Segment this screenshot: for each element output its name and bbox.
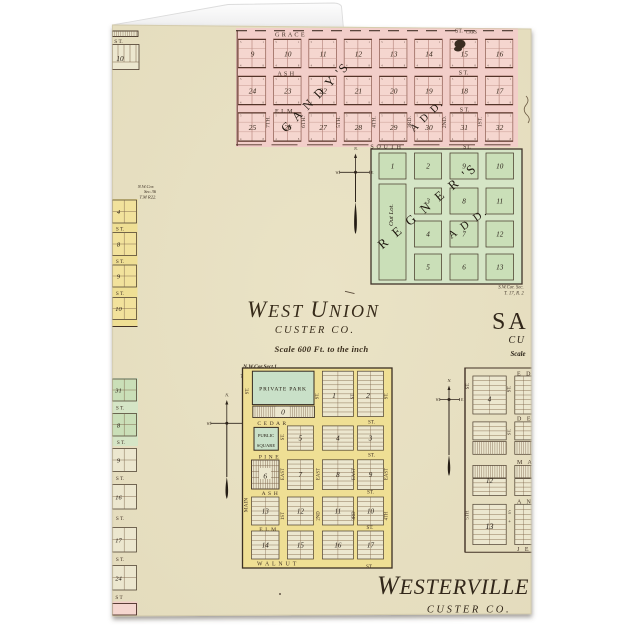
svg-text:16: 16 <box>496 49 504 58</box>
svg-text:3RD: 3RD <box>352 511 357 521</box>
svg-text:5TH: 5TH <box>466 510 471 520</box>
svg-text:N.: N. <box>353 146 358 151</box>
svg-text:24: 24 <box>249 86 257 95</box>
svg-text:5: 5 <box>426 264 430 272</box>
svg-text:ST.: ST. <box>367 490 374 496</box>
svg-text:17: 17 <box>115 537 122 544</box>
svg-text:2: 2 <box>366 391 370 400</box>
svg-text:1: 1 <box>391 163 395 171</box>
svg-text:10: 10 <box>116 55 124 63</box>
svg-text:PRIVATE PARK: PRIVATE PARK <box>259 387 307 393</box>
svg-text:Scale: Scale <box>510 351 525 358</box>
svg-text:10: 10 <box>115 306 122 313</box>
svg-text:S T.: S T. <box>460 108 470 114</box>
svg-text:3: 3 <box>368 435 373 443</box>
svg-text:16: 16 <box>115 494 122 501</box>
svg-text:17: 17 <box>496 86 504 95</box>
svg-text:13: 13 <box>496 264 504 272</box>
svg-text:SA: SA <box>492 309 529 335</box>
svg-text:14: 14 <box>262 542 270 550</box>
svg-text:A S H: A S H <box>262 491 279 497</box>
svg-text:WEST UNION: WEST UNION <box>247 297 380 322</box>
svg-text:20: 20 <box>390 86 398 95</box>
svg-text:24: 24 <box>115 575 122 582</box>
svg-text:ST.: ST. <box>367 525 374 531</box>
svg-text:4: 4 <box>488 396 492 404</box>
svg-text:W.: W. <box>335 171 339 175</box>
svg-text:4TH.: 4TH. <box>372 116 378 128</box>
svg-text:13: 13 <box>390 49 398 58</box>
svg-text:12: 12 <box>496 231 504 239</box>
svg-text:1ST: 1ST <box>281 512 286 520</box>
svg-text:18: 18 <box>461 86 469 95</box>
svg-text:17: 17 <box>367 542 375 550</box>
svg-text:ST.: ST. <box>455 29 463 35</box>
svg-text:11: 11 <box>320 49 327 58</box>
svg-text:S T.: S T. <box>116 227 124 233</box>
svg-text:S T.: S T. <box>116 557 124 563</box>
svg-text:ST.: ST. <box>351 393 356 400</box>
svg-text:6: 6 <box>263 472 267 481</box>
svg-text:EAST: EAST <box>281 468 286 480</box>
svg-text:ST: ST <box>366 564 373 570</box>
svg-text:C E D A R: C E D A R <box>257 421 286 427</box>
svg-text:4: 4 <box>426 231 430 239</box>
svg-text:S T.: S T. <box>114 39 123 45</box>
svg-text:6: 6 <box>462 264 466 272</box>
svg-text:ST.: ST. <box>466 383 471 390</box>
svg-text:8: 8 <box>462 198 466 206</box>
svg-text:T.M R22.: T.M R22. <box>140 194 157 199</box>
svg-text:N.: N. <box>224 393 229 398</box>
svg-text:7TH.: 7TH. <box>266 116 272 128</box>
svg-text:2: 2 <box>426 163 430 171</box>
svg-text:12: 12 <box>486 477 494 485</box>
svg-text:16: 16 <box>334 542 342 550</box>
svg-text:25: 25 <box>249 123 257 132</box>
svg-text:8: 8 <box>336 471 340 479</box>
svg-text:27: 27 <box>319 123 327 132</box>
svg-text:12: 12 <box>355 49 363 58</box>
svg-text:S.W.Cor. Sec.: S.W.Cor. Sec. <box>498 286 524 291</box>
svg-text:11: 11 <box>496 198 503 206</box>
svg-text:ST.: ST. <box>508 386 513 393</box>
svg-text:G R A C E: G R A C E <box>275 32 305 39</box>
svg-text:2ND: 2ND <box>317 511 322 521</box>
svg-text:15: 15 <box>297 542 305 550</box>
svg-text:10: 10 <box>284 49 292 58</box>
svg-text:21: 21 <box>355 86 362 95</box>
svg-text:WESTERVILLE: WESTERVILLE <box>377 571 529 600</box>
svg-text:13: 13 <box>262 508 270 516</box>
svg-text:S T.: S T. <box>116 516 124 522</box>
svg-text:+: + <box>508 520 511 525</box>
svg-text:A S H: A S H <box>277 71 294 78</box>
svg-text:19: 19 <box>425 86 433 95</box>
svg-text:ST.: ST. <box>316 393 321 400</box>
svg-text:4: 4 <box>336 435 340 443</box>
svg-text:PUBLIC: PUBLIC <box>258 433 274 438</box>
svg-text:EAST: EAST <box>317 468 322 480</box>
svg-text:CU: CU <box>509 335 526 346</box>
svg-text:11: 11 <box>335 508 341 516</box>
svg-text:1ST.: 1ST. <box>477 116 483 127</box>
svg-text:5: 5 <box>299 435 303 443</box>
svg-text:N.: N. <box>446 378 451 383</box>
svg-text:W A L N U T: W A L N U T <box>257 562 297 568</box>
svg-text:W.: W. <box>436 398 440 402</box>
svg-text:S T.: S T. <box>116 476 124 482</box>
svg-text:SQUARE: SQUARE <box>257 443 276 448</box>
svg-text:W.: W. <box>207 422 211 426</box>
svg-text:9: 9 <box>251 49 255 58</box>
svg-text:T. 17, R. 2: T. 17, R. 2 <box>504 292 524 297</box>
svg-text:0: 0 <box>281 407 285 416</box>
svg-text:31: 31 <box>460 123 468 132</box>
svg-text:12: 12 <box>297 508 305 516</box>
svg-text:ST.: ST. <box>368 453 375 459</box>
svg-text:EAST: EAST <box>352 468 357 480</box>
svg-text:ST.: ST. <box>507 429 512 435</box>
svg-text:S T.: S T. <box>116 406 124 412</box>
svg-text:10: 10 <box>496 163 504 171</box>
svg-text:P I N E: P I N E <box>259 454 280 460</box>
svg-text:CARS: CARS <box>466 30 478 35</box>
svg-text:E.: E. <box>460 398 464 402</box>
svg-text:ST.: ST. <box>281 434 286 441</box>
svg-text:MAIN: MAIN <box>243 498 249 512</box>
svg-text:1: 1 <box>332 391 336 400</box>
svg-text:E.: E. <box>370 171 374 175</box>
svg-text:32: 32 <box>495 123 504 132</box>
svg-text:CUSTER CO.: CUSTER CO. <box>275 325 355 336</box>
svg-text:4TH: 4TH <box>385 511 390 520</box>
svg-text:ST.: ST. <box>368 420 375 426</box>
svg-text:Scale 600 Ft. to the inch: Scale 600 Ft. to the inch <box>275 344 369 354</box>
svg-text:ST.: ST. <box>385 393 390 400</box>
svg-text:13: 13 <box>486 522 494 531</box>
svg-text:2ND.: 2ND. <box>442 115 448 128</box>
svg-text:10: 10 <box>367 508 375 516</box>
svg-text:28: 28 <box>355 123 363 132</box>
svg-text:23: 23 <box>284 86 292 95</box>
svg-text:5TH.: 5TH. <box>336 116 342 128</box>
svg-text:31: 31 <box>114 388 122 395</box>
svg-text:29: 29 <box>390 123 398 132</box>
svg-text:EAST: EAST <box>385 468 390 480</box>
svg-text:9: 9 <box>369 471 373 479</box>
svg-text:14: 14 <box>425 49 433 58</box>
svg-text:S T.: S T. <box>117 440 125 446</box>
svg-text:15: 15 <box>461 49 469 58</box>
svg-text:S T.: S T. <box>459 71 469 77</box>
svg-text:S T.: S T. <box>116 259 124 265</box>
svg-text:ST.: ST. <box>246 388 251 395</box>
svg-text:Out Lot.: Out Lot. <box>388 204 395 226</box>
svg-text:S T.: S T. <box>116 291 124 297</box>
svg-text:7: 7 <box>299 471 303 479</box>
svg-text:S T: S T <box>115 595 123 601</box>
